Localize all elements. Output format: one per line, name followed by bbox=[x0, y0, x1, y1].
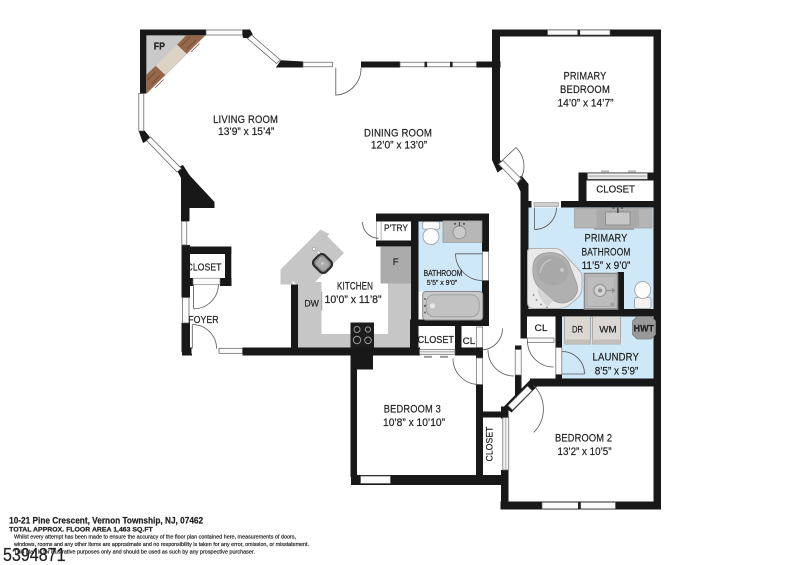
svg-text:BATHROOM: BATHROOM bbox=[424, 269, 463, 278]
svg-text:F: F bbox=[393, 257, 399, 268]
svg-text:CLOSET: CLOSET bbox=[418, 335, 454, 346]
svg-text:5’5” x 9’0”: 5’5” x 9’0” bbox=[427, 278, 458, 287]
svg-text:CLOSET: CLOSET bbox=[485, 426, 496, 461]
svg-text:LAUNDRY: LAUNDRY bbox=[593, 352, 640, 364]
svg-text:DW: DW bbox=[304, 299, 319, 310]
svg-text:13’2” x 10’5”: 13’2” x 10’5” bbox=[558, 446, 612, 458]
svg-text:10-21 Pine Crescent, Vernon To: 10-21 Pine Crescent, Vernon Township, NJ… bbox=[9, 516, 203, 527]
svg-text:Whilst every attempt has been: Whilst every attempt has been made to en… bbox=[14, 535, 296, 541]
svg-text:CLOSET: CLOSET bbox=[596, 185, 635, 196]
svg-text:BEDROOM 2: BEDROOM 2 bbox=[555, 433, 612, 445]
svg-text:KITCHEN: KITCHEN bbox=[337, 281, 373, 293]
svg-text:LIVING ROOM: LIVING ROOM bbox=[213, 114, 278, 126]
svg-text:PRIMARY: PRIMARY bbox=[585, 233, 628, 245]
svg-text:CL: CL bbox=[535, 323, 548, 334]
svg-text:FP: FP bbox=[154, 42, 166, 53]
svg-text:BEDROOM 3: BEDROOM 3 bbox=[384, 404, 441, 416]
svg-text:WM: WM bbox=[599, 325, 616, 336]
svg-text:HWT: HWT bbox=[634, 324, 655, 334]
svg-text:8’5” x 5’9”: 8’5” x 5’9” bbox=[595, 365, 639, 377]
svg-text:BATHROOM: BATHROOM bbox=[582, 247, 631, 259]
svg-text:FOYER: FOYER bbox=[188, 315, 218, 326]
svg-text:13’9” x 15’4”: 13’9” x 15’4” bbox=[218, 126, 275, 138]
svg-text:BEDROOM: BEDROOM bbox=[560, 84, 610, 96]
svg-text:11’5” x 9’0”: 11’5” x 9’0” bbox=[582, 260, 631, 272]
svg-text:10’0” x 11’8”: 10’0” x 11’8” bbox=[325, 294, 382, 306]
svg-text:5394871: 5394871 bbox=[3, 544, 66, 565]
svg-text:CLOSET: CLOSET bbox=[187, 263, 222, 274]
svg-text:DR: DR bbox=[572, 325, 583, 336]
svg-text:PRIMARY: PRIMARY bbox=[564, 70, 607, 82]
svg-text:DINING ROOM: DINING ROOM bbox=[364, 127, 432, 139]
svg-text:10’8” x 10’10”: 10’8” x 10’10” bbox=[383, 417, 445, 429]
svg-text:TOTAL APPROX. FLOOR AREA 1,463: TOTAL APPROX. FLOOR AREA 1,463 SQ.FT bbox=[9, 527, 153, 534]
svg-text:P’TRY: P’TRY bbox=[384, 223, 409, 234]
svg-text:14’0” x 14’7”: 14’0” x 14’7” bbox=[558, 97, 614, 109]
svg-text:CL: CL bbox=[463, 336, 476, 347]
svg-text:12’0” x 13’0”: 12’0” x 13’0” bbox=[371, 140, 428, 152]
